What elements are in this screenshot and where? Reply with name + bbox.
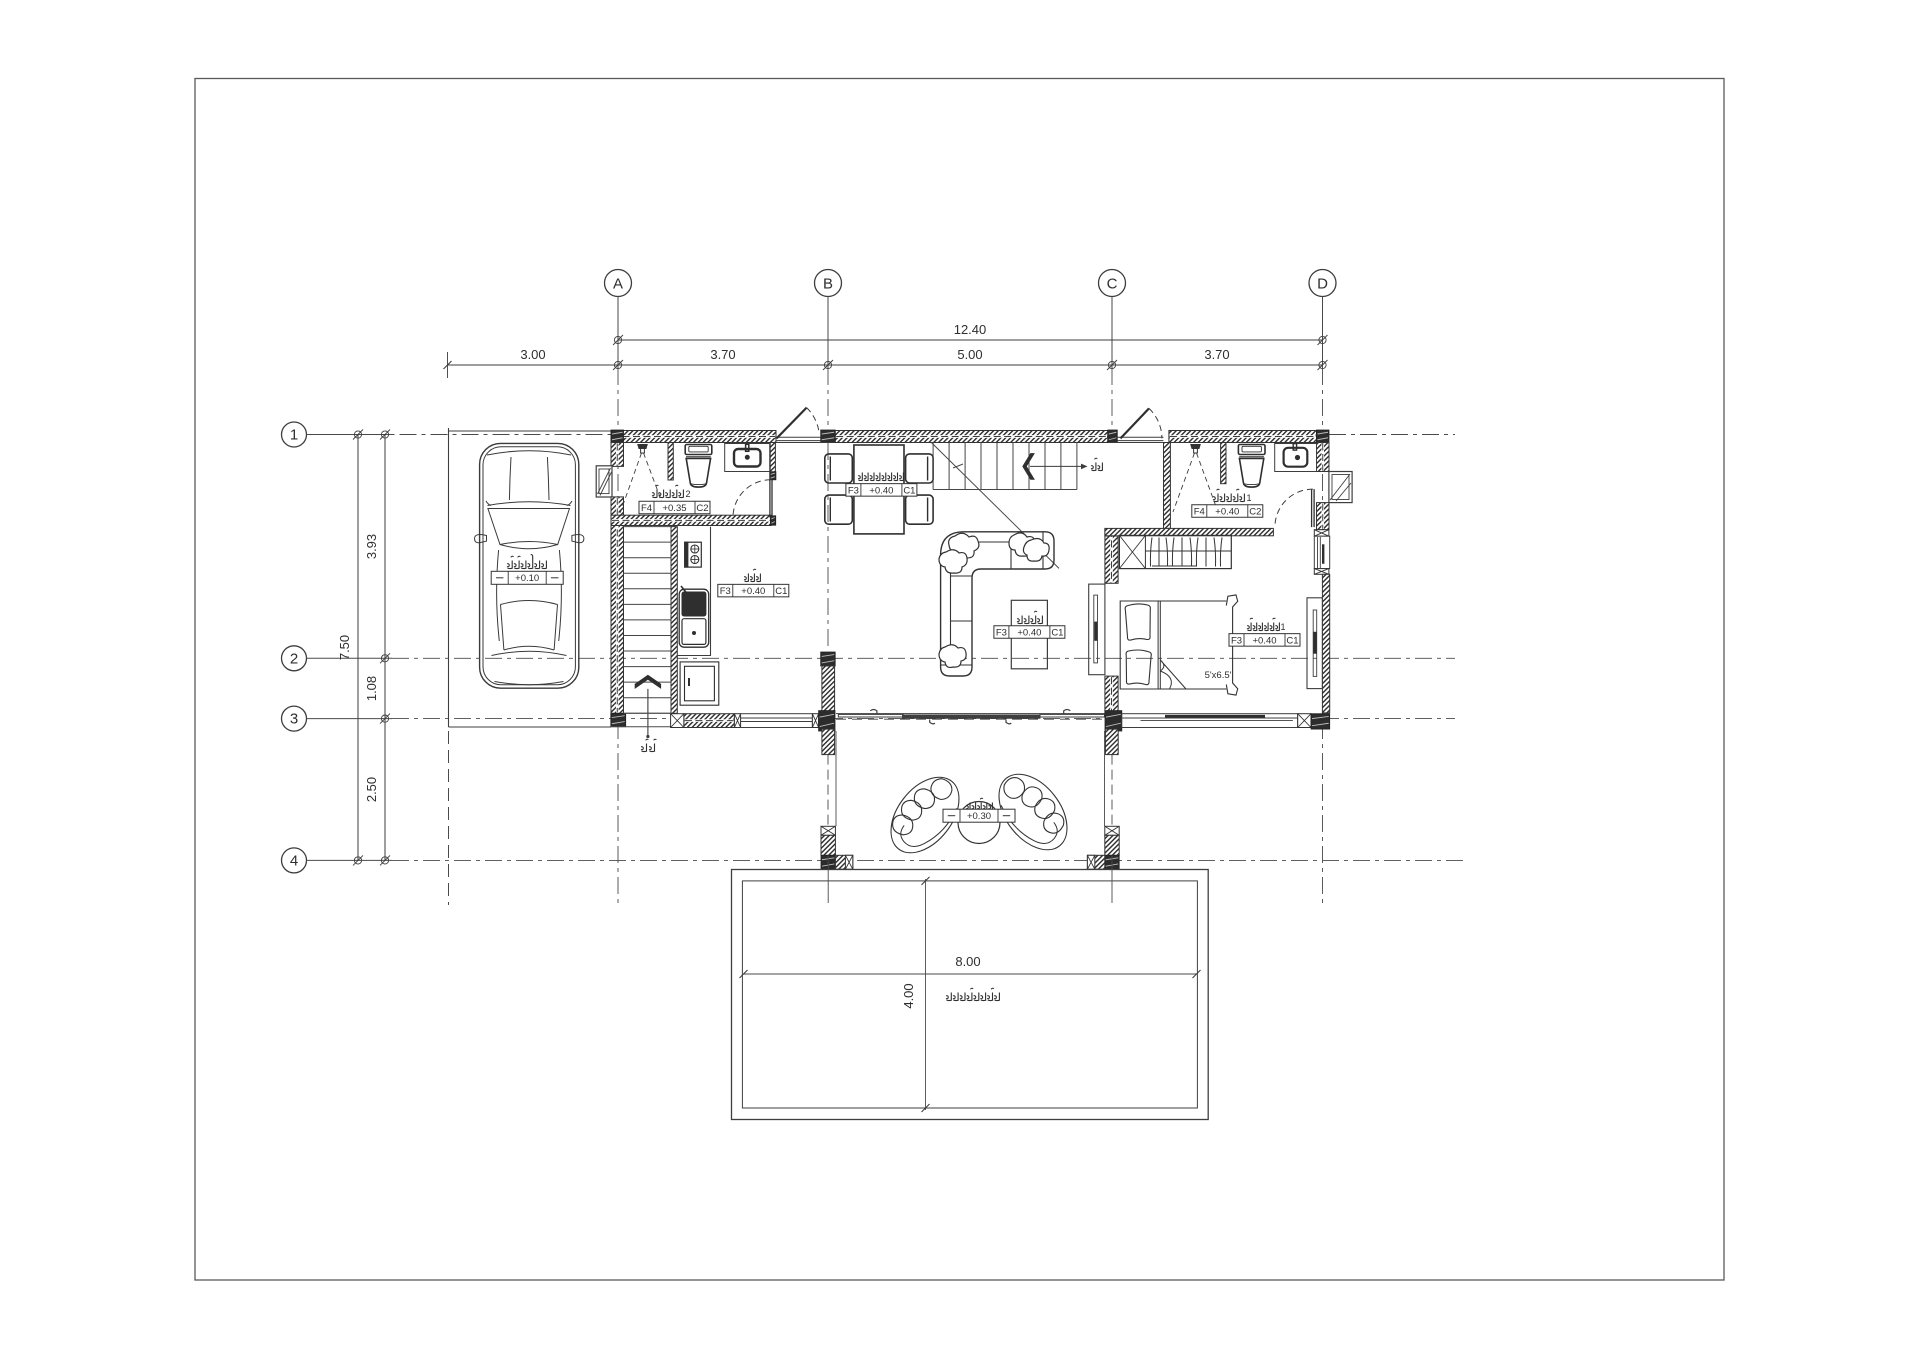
svg-text:1.08: 1.08 (364, 676, 379, 701)
svg-text:4: 4 (290, 852, 298, 869)
svg-text:+0.35: +0.35 (662, 503, 686, 514)
svg-text:+0.10: +0.10 (515, 573, 539, 584)
svg-text:+0.40: +0.40 (741, 586, 765, 597)
svg-text:1: 1 (1280, 622, 1285, 632)
svg-text:3.70: 3.70 (1204, 347, 1229, 362)
svg-text:1: 1 (1246, 493, 1251, 503)
svg-text:2.50: 2.50 (364, 777, 379, 802)
svg-text:C2: C2 (696, 503, 708, 514)
svg-text:B: B (823, 276, 833, 293)
svg-text:F3: F3 (848, 485, 859, 496)
svg-text:4.00: 4.00 (901, 983, 916, 1008)
svg-text:F4: F4 (1194, 506, 1205, 517)
svg-text:C: C (1107, 276, 1118, 293)
svg-text:2: 2 (685, 489, 690, 499)
svg-text:F3: F3 (1231, 635, 1242, 646)
svg-text:12.40: 12.40 (954, 322, 987, 337)
svg-text:5'x6.5': 5'x6.5' (1205, 670, 1232, 681)
svg-text:D: D (1317, 276, 1328, 293)
svg-text:8.00: 8.00 (955, 954, 980, 969)
svg-text:2: 2 (290, 650, 298, 667)
svg-text:5.00: 5.00 (957, 347, 982, 362)
svg-text:+0.40: +0.40 (1215, 506, 1239, 517)
svg-text:C2: C2 (1249, 506, 1261, 517)
svg-text:1: 1 (290, 427, 298, 444)
svg-text:+0.40: +0.40 (869, 485, 893, 496)
svg-text:C1: C1 (1286, 635, 1298, 646)
svg-text:A: A (613, 276, 623, 293)
svg-text:F3: F3 (996, 627, 1007, 638)
svg-text:C1: C1 (775, 586, 787, 597)
svg-text:F4: F4 (641, 503, 652, 514)
svg-text:3: 3 (290, 711, 298, 728)
svg-text:3.70: 3.70 (710, 347, 735, 362)
svg-text:+0.40: +0.40 (1252, 635, 1276, 646)
svg-text:+0.40: +0.40 (1017, 627, 1041, 638)
svg-text:3.00: 3.00 (520, 347, 545, 362)
svg-text:+0.30: +0.30 (967, 811, 991, 822)
svg-text:7.50: 7.50 (337, 635, 352, 660)
svg-text:C1: C1 (1051, 627, 1063, 638)
svg-text:C1: C1 (903, 485, 915, 496)
svg-text:3.93: 3.93 (364, 534, 379, 559)
svg-text:F3: F3 (720, 586, 731, 597)
